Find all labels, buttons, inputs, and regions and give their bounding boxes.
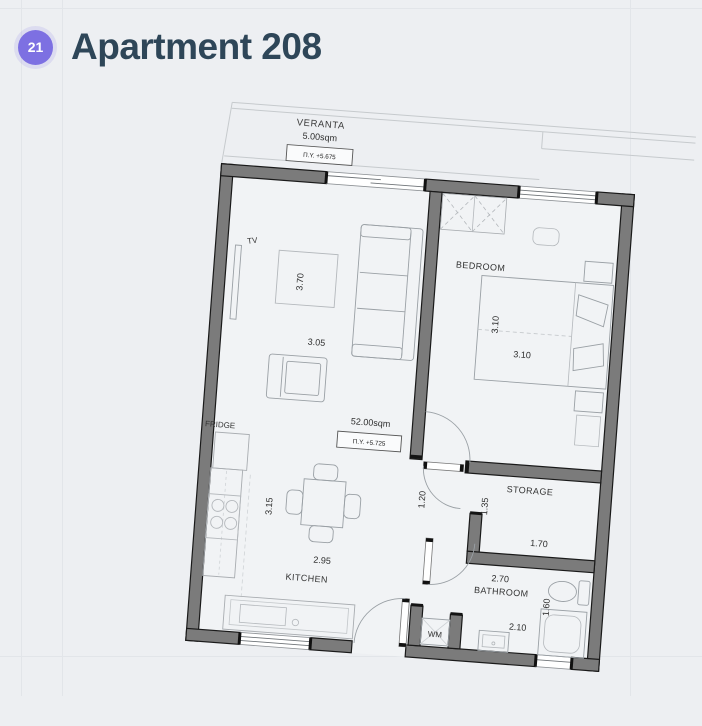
bathroom-length-dim: 1.60: [541, 598, 552, 616]
apartment-number-badge: 21: [18, 30, 53, 65]
header: 21 Apartment 208: [18, 26, 322, 68]
wall-top-3: [596, 192, 635, 207]
page-grid-line: [62, 0, 63, 696]
bathroom-width2-dim: 2.10: [509, 622, 527, 633]
kitchen-depth-dim: 3.15: [263, 497, 274, 515]
living-width-dim: 3.05: [307, 337, 325, 348]
wall-bottom-2: [309, 638, 352, 653]
veranta-label: VERANTA: [296, 117, 345, 132]
storage-depth-dim: 1.35: [479, 497, 490, 515]
floor-plan-svg: VERANTA 5.00sqm Π.Υ. +5.675: [149, 91, 702, 720]
bedroom-depth-dim: 3.10: [490, 316, 501, 334]
wall-bottom-4: [571, 657, 600, 671]
bathroom-width-dim: 2.70: [491, 573, 509, 584]
living-rug-dim: 3.70: [294, 273, 305, 291]
veranta-edge-line: [222, 102, 233, 164]
door-cap: [423, 462, 427, 469]
veranta-neighbor-line: [542, 149, 695, 160]
door-cap: [399, 643, 406, 647]
door-cap: [423, 580, 430, 584]
page-title: Apartment 208: [71, 26, 322, 68]
tv-label: TV: [247, 235, 259, 245]
storage-width-dim: 1.70: [530, 538, 548, 549]
page-grid-line: [21, 0, 22, 696]
bedroom-width-dim: 3.10: [513, 349, 531, 360]
kitchen-width-dim: 2.95: [313, 555, 331, 566]
door-cap: [426, 538, 433, 542]
wall-wm-right: [448, 614, 463, 649]
page-grid-line: [0, 8, 702, 9]
wm-label: WM: [427, 629, 442, 639]
hall-width-dim: 1.20: [416, 491, 427, 509]
veranta-step-line: [542, 132, 543, 149]
veranta-area-label: 5.00sqm: [302, 131, 337, 144]
door-cap: [460, 464, 464, 471]
door-cap: [402, 598, 409, 602]
floor-plan: VERANTA 5.00sqm Π.Υ. +5.675: [149, 91, 702, 720]
